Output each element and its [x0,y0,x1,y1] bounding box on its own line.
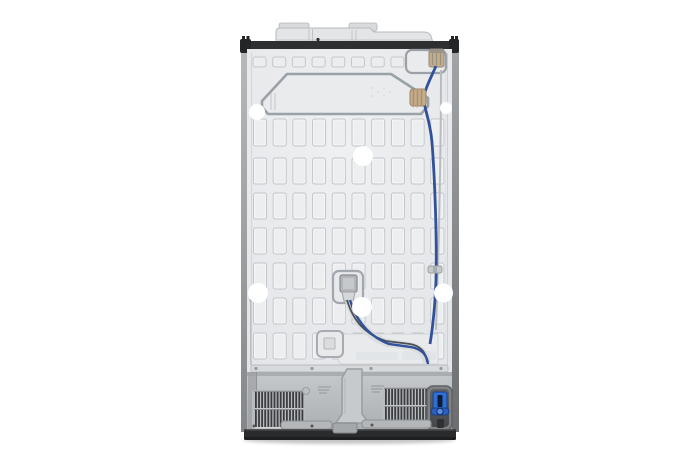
valve-tube-stub [437,419,444,428]
ghost-stamp-mark [356,352,398,360]
panel-slot [352,119,365,146]
panel-tab [273,57,286,67]
panel-slot [431,193,444,219]
panel-slot [391,298,404,324]
right-vent-grille-slat [404,389,406,405]
panel-tab [352,57,365,67]
left-small-recess [317,331,343,357]
round-sticker [353,146,373,166]
left-vent-grille-slat [258,392,260,408]
panel-slot [391,193,404,219]
left-vent-grille-slat [280,392,282,408]
panel-slot [254,228,267,254]
right-vent-grille-slat [407,389,409,405]
left-vent-grille-slat [264,410,266,427]
right-vent-grille-slat [391,389,393,405]
right-vent-grille-slat [410,389,412,405]
left-vent-grille-slat [302,392,304,408]
panel-slot [391,158,404,184]
left-vent-grille-slat [274,392,276,408]
panel-slot [273,158,286,184]
top-right-valve-box [406,49,446,73]
right-vent-grille-slat [401,389,403,405]
right-vent-grille-slat [394,389,396,405]
right-vent-grille-edge [384,406,430,407]
round-sticker [352,297,372,317]
left-vent-grille-slat [274,410,276,427]
panel-tab [391,57,404,67]
panel-slot [293,193,306,219]
left-vent-grille-slat [271,410,273,427]
panel-slot [273,333,286,359]
panel-slot [332,193,345,219]
panel-slot [352,228,365,254]
round-sticker [440,102,452,114]
panel-tab-row [253,57,424,67]
left-vent-grille-slat [292,392,294,408]
cabinet-side-left [241,46,247,432]
refrigerator-back-photo [0,0,700,465]
left-vent-grille-slat [255,392,257,408]
panel-slot [332,119,345,146]
panel-slot [372,263,385,289]
panel-slot [372,228,385,254]
panel-slot [411,228,424,254]
panel-tab [292,57,305,67]
panel-tab [371,57,384,67]
cabinet-side-right [452,46,459,432]
round-sticker [248,283,268,303]
top-cap-screw [316,38,319,41]
panel-slot [293,298,306,324]
panel-slot [293,333,306,359]
panel-slot [313,193,326,219]
panel-slot [391,263,404,289]
panel-slot [352,193,365,219]
panel-slot [332,158,345,184]
panel-slot [254,119,267,146]
panel-slot [411,193,424,219]
left-vent-grille-slat [283,392,285,408]
right-vent-grille-slat [385,389,387,405]
panel-slot [372,158,385,184]
right-vent-grille-slat [397,389,399,405]
panel-slot [313,263,326,289]
round-sticker [434,284,453,303]
panel-slot [391,119,404,146]
panel-slot [372,298,385,324]
left-vent-grille-slat [261,392,263,408]
top-cap [276,23,433,43]
panel-tab [312,57,325,67]
left-vent-grille-slat [298,392,300,408]
panel-tab [253,57,266,67]
left-vent-grille-slat [264,392,266,408]
panel-slot [293,158,306,184]
panel-slot [313,119,326,146]
left-vent-grille-slat [271,392,273,408]
left-vent-grille-slat [258,410,260,427]
panel-slot [411,298,424,324]
panel-slot [411,119,424,146]
panel-slot [293,263,306,289]
panel-slot [313,298,326,324]
right-vent-grille-slat [419,389,421,405]
panel-slot [293,228,306,254]
right-vent-grille-slat [416,389,418,405]
panel-slot [273,263,286,289]
panel-slot [254,193,267,219]
panel-slot [254,158,267,184]
panel-slot [332,228,345,254]
left-vent-grille-slat [295,392,297,408]
center-foot-tab [333,423,357,433]
panel-slot [273,298,286,324]
bottom-plate-left [281,421,332,429]
right-vent-grille-slat [413,389,415,405]
round-sticker [249,104,265,120]
inline-connector [410,89,426,106]
panel-slot [411,158,424,184]
panel-slot [293,119,306,146]
tube-clip [428,266,442,273]
product-photo-stage [0,0,700,465]
panel-slot [313,228,326,254]
left-vent-grille-edge [254,409,303,410]
left-vent-grille-slat [267,410,269,427]
panel-slot [313,158,326,184]
machine-compartment [247,369,452,430]
right-vent-grille-slat [422,389,424,405]
panel-slot [391,228,404,254]
panel-slot [273,193,286,219]
panel-slot [254,333,267,359]
right-vent-grille-edge [384,388,430,389]
panel-tab [332,57,345,67]
left-vent-grille-slat [277,410,279,427]
top-edge-strip [241,41,459,49]
panel-slot [411,263,424,289]
left-vent-grille-slat [261,410,263,427]
panel-slot [372,119,385,146]
left-vent-grille-edge [254,391,303,392]
panel-slot [273,228,286,254]
panel-slot [372,193,385,219]
left-vent-grille-slat [267,392,269,408]
left-vent-grille-slat [286,392,288,408]
left-vent-grille-slat [289,392,291,408]
left-vent-grille-slat [277,392,279,408]
right-vent-grille-slat [388,389,390,405]
left-vent-grille-slat [255,410,257,427]
panel-slot [273,119,286,146]
